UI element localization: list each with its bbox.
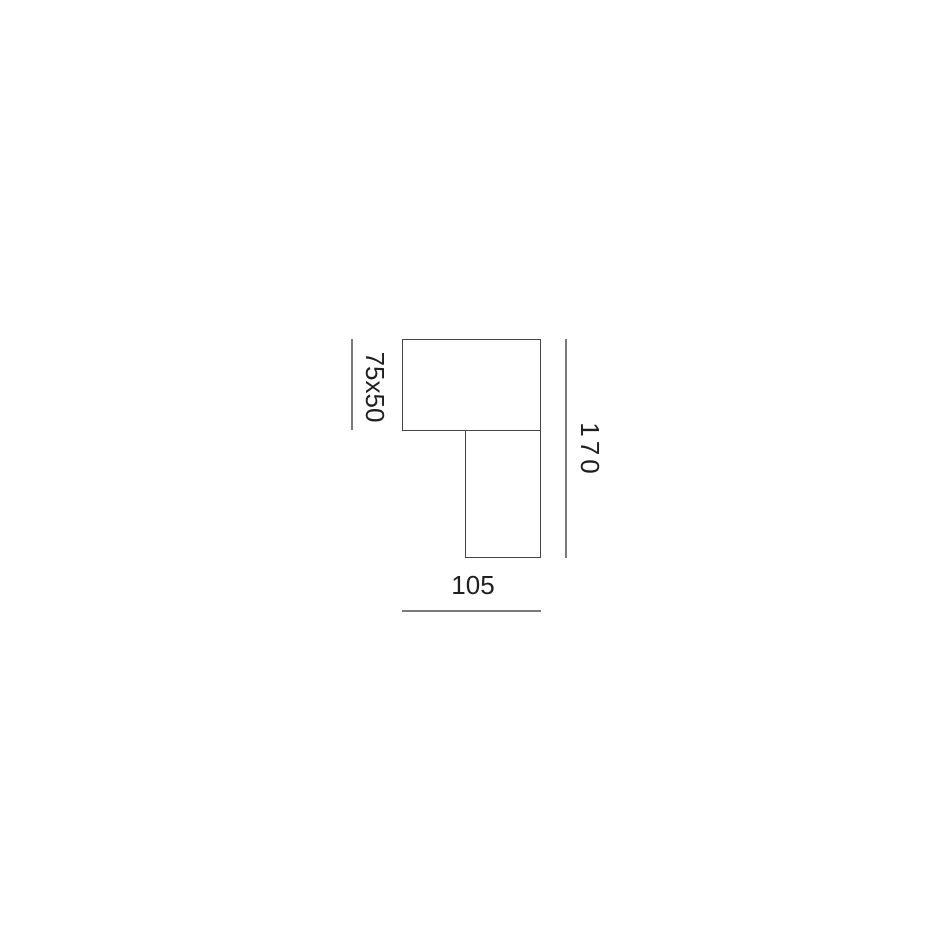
shade-dimension-label: 75x50 — [362, 352, 388, 423]
lamp-stem-outline — [465, 431, 541, 558]
width-dimension-label: 105 — [451, 572, 494, 598]
lamp-shade-outline — [402, 339, 541, 431]
width-dimension-line — [402, 610, 541, 612]
height-dimension-line — [565, 339, 567, 558]
shade-dimension-line — [351, 339, 353, 430]
height-dimension-label: 170 — [577, 422, 603, 477]
drawing-canvas: 75x50 170 105 — [0, 0, 950, 950]
